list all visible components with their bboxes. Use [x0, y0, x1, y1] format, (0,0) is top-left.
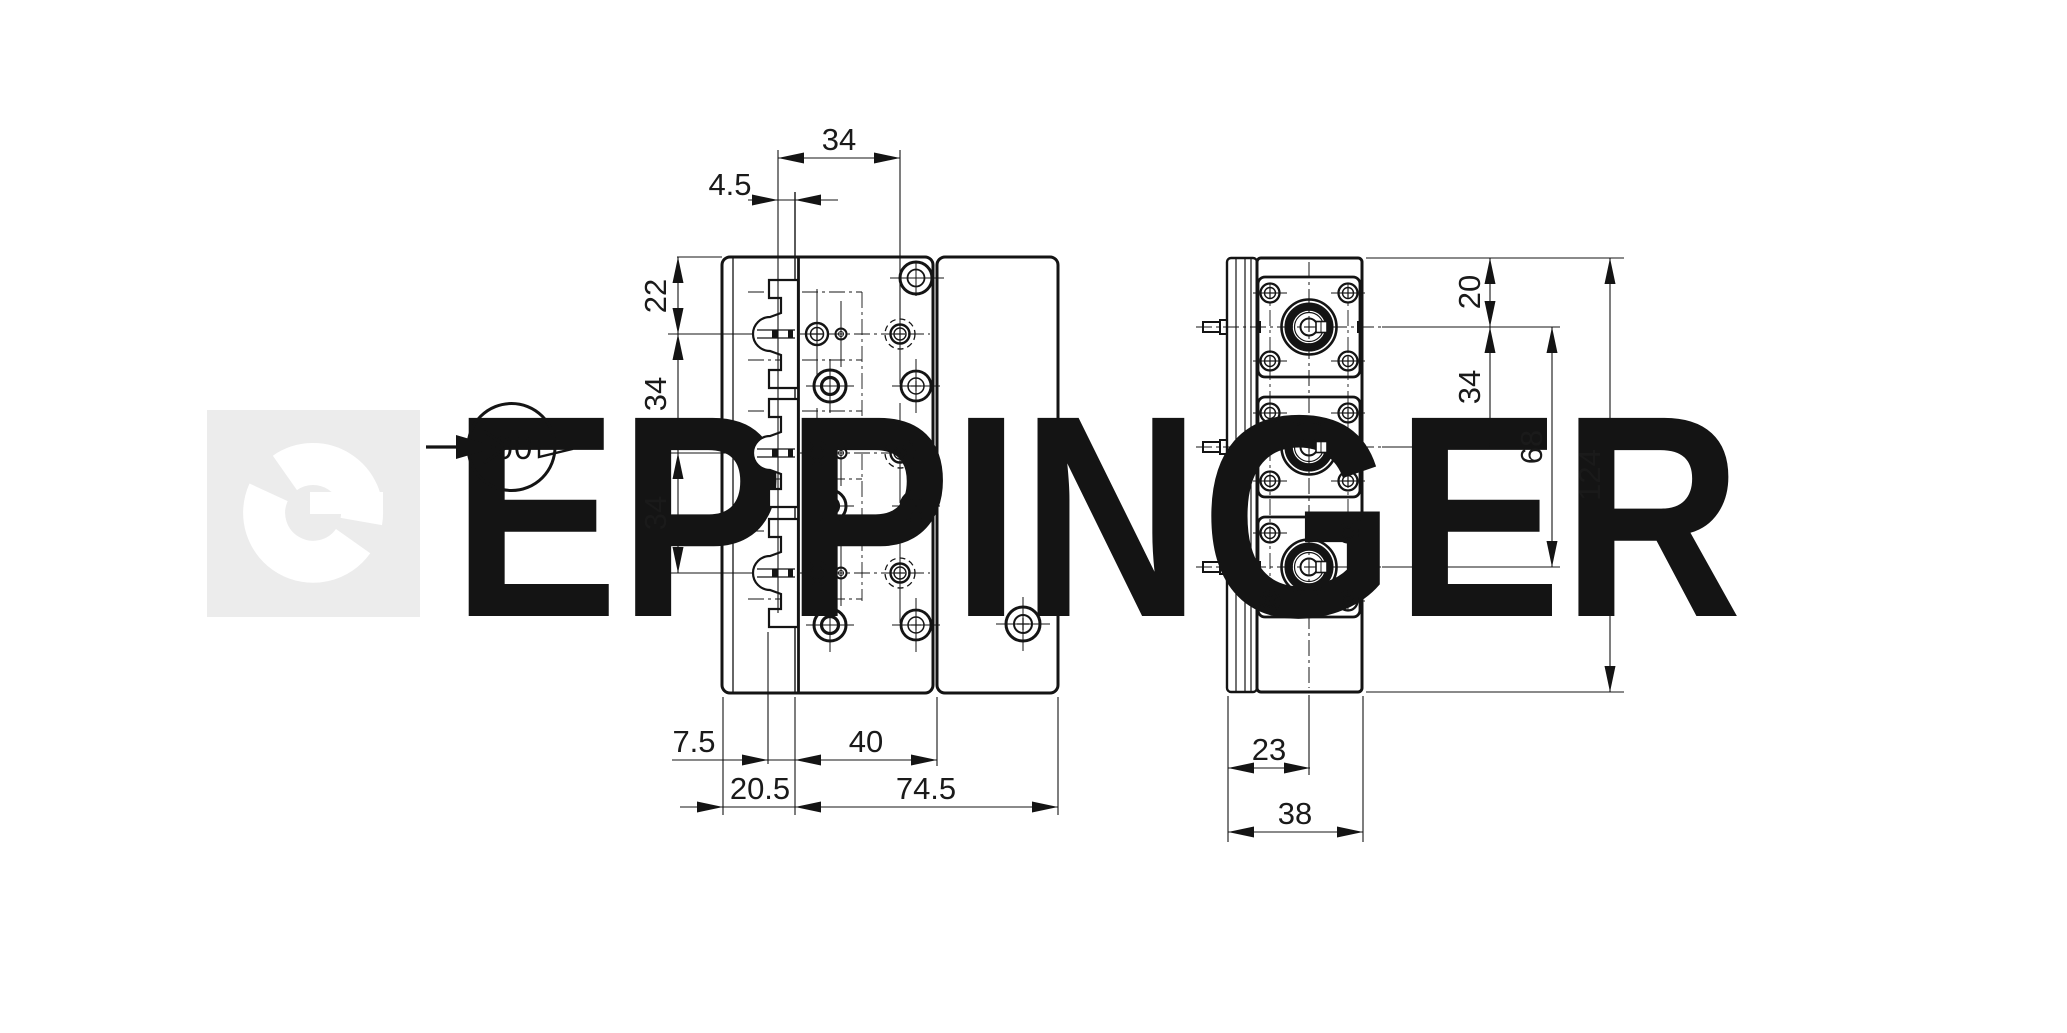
eppinger-logo-icon: [207, 410, 420, 617]
dim-side-total-height: 124: [1572, 449, 1607, 501]
drawing-sheet: EPPINGER 00: [0, 0, 2067, 1033]
technical-drawing: EPPINGER 00: [0, 0, 2067, 1033]
dim-front-body-width: 74.5: [896, 771, 956, 806]
dim-front-clamp-offset: 4.5: [708, 167, 751, 202]
dim-side-top-offset: 20: [1452, 275, 1487, 309]
dim-front-clamp-depth: 7.5: [672, 724, 715, 759]
dim-side-total-depth: 38: [1278, 796, 1312, 831]
dim-side-port-span: 68: [1514, 430, 1549, 464]
dim-front-row-pitch-1: 34: [638, 377, 673, 411]
dim-front-top-pitch: 34: [822, 122, 856, 157]
dim-front-hole-span: 40: [849, 724, 883, 759]
dim-front-row-pitch-2: 34: [638, 496, 673, 530]
dim-side-face-to-axis: 23: [1252, 732, 1286, 767]
dim-side-port-pitch: 34: [1452, 370, 1487, 404]
symbol-label: 00: [495, 429, 534, 466]
dim-front-top-margin: 22: [638, 279, 673, 313]
dim-front-plate-width: 20.5: [730, 771, 790, 806]
